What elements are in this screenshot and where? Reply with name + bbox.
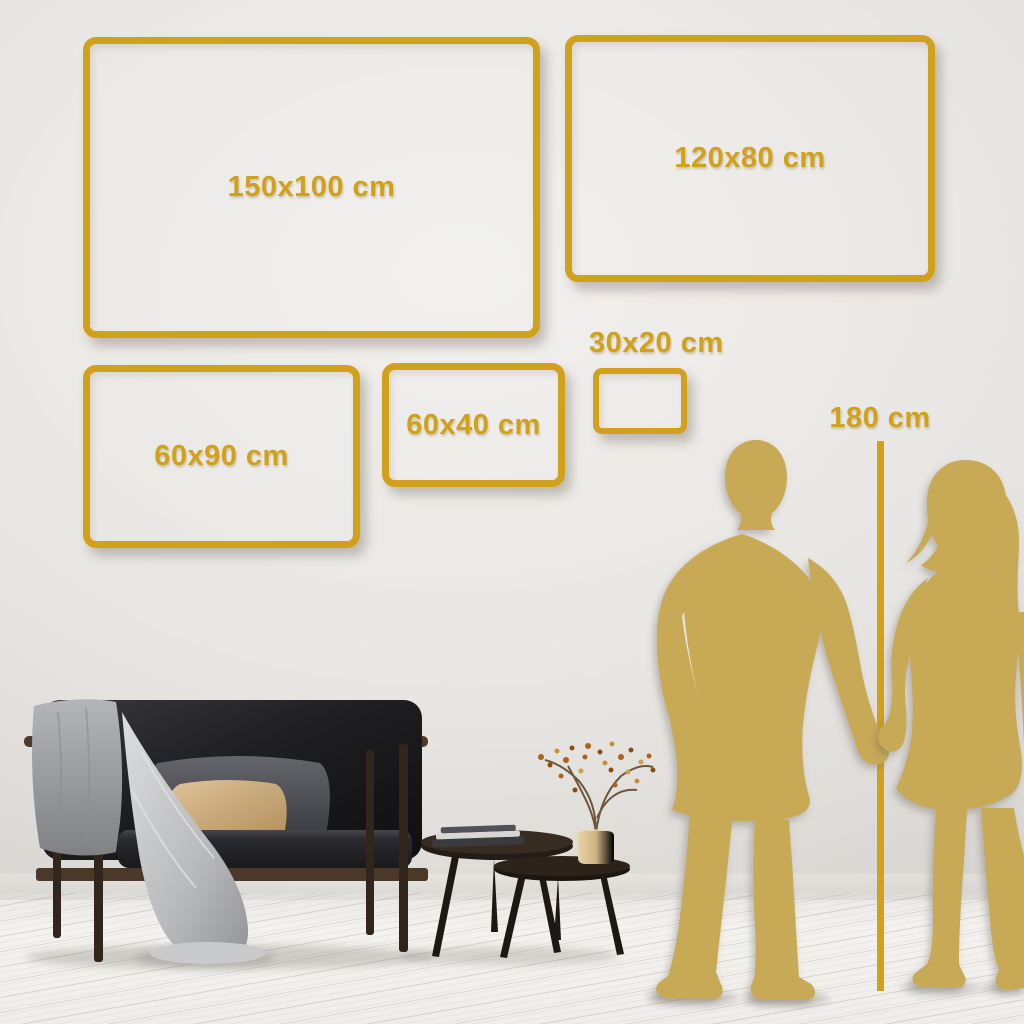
floor-planks	[0, 893, 1024, 1024]
man-torso	[657, 534, 821, 821]
height-label: 180 cm	[810, 402, 950, 435]
size-label-150x100: 150x100 cm	[228, 171, 396, 204]
size-frame-60x40: 60x40 cm	[382, 363, 565, 487]
floor	[0, 893, 1024, 1024]
vase-rim	[576, 830, 616, 839]
woman-hair-flow	[992, 484, 1024, 642]
man-head	[725, 440, 787, 530]
sofa-arm-dowel-right	[386, 736, 428, 747]
size-frame-60x90: 60x90 cm	[83, 365, 360, 548]
size-frame-30x20	[593, 368, 687, 434]
woman-dress	[896, 566, 1022, 810]
sofa-seat-cushion	[118, 830, 412, 868]
woman-head	[921, 460, 1011, 572]
size-label-120x80: 120x80 cm	[674, 142, 825, 175]
branch-berries	[538, 742, 656, 793]
man-right-arm	[808, 558, 889, 765]
size-label-60x90: 60x90 cm	[154, 440, 289, 473]
sofa-shell	[42, 700, 422, 860]
sofa-pillow-gray	[146, 756, 329, 835]
woman-near-arm	[878, 578, 928, 752]
size-frame-120x80: 120x80 cm	[565, 35, 935, 282]
books-stack	[432, 824, 525, 847]
branch-decor	[538, 742, 656, 865]
vase	[578, 831, 614, 864]
sofa-pillow-beige	[168, 780, 287, 836]
size-guide-scene: 150x100 cm 120x80 cm 60x90 cm 60x40 cm 3…	[0, 0, 1024, 1024]
man-arm-gap	[682, 612, 700, 700]
baseboard	[0, 874, 1024, 895]
size-label-30x20: 30x20 cm	[589, 327, 724, 360]
sofa-arm-dowel-left	[24, 736, 120, 747]
woman-hair-wisp	[906, 512, 934, 563]
size-frame-150x100: 150x100 cm	[83, 37, 540, 338]
woman-far-arm-edge	[1014, 612, 1024, 744]
size-label-60x40: 60x40 cm	[406, 409, 541, 442]
